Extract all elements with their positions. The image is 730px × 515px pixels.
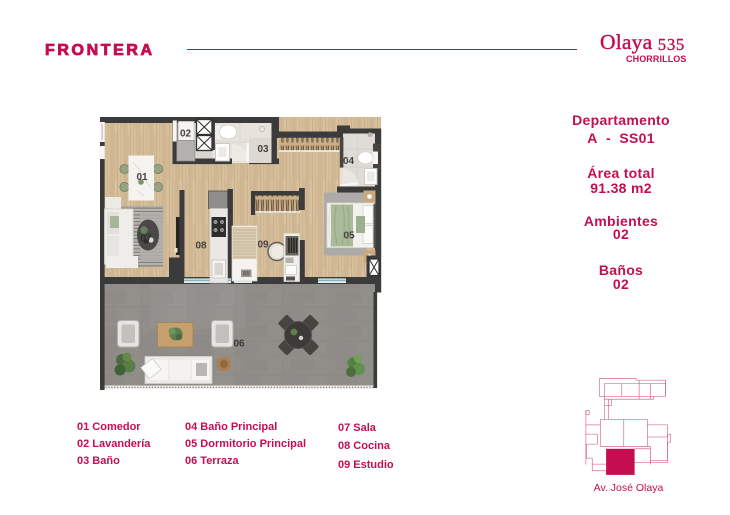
svg-text:06: 06: [233, 339, 245, 350]
svg-text:04: 04: [343, 156, 355, 167]
svg-text:01: 01: [136, 172, 148, 183]
svg-text:03: 03: [257, 144, 269, 155]
svg-text:05: 05: [343, 231, 355, 242]
svg-text:08: 08: [195, 241, 207, 252]
svg-text:07: 07: [140, 234, 152, 245]
svg-text:09: 09: [257, 240, 269, 251]
svg-text:02: 02: [180, 129, 192, 140]
